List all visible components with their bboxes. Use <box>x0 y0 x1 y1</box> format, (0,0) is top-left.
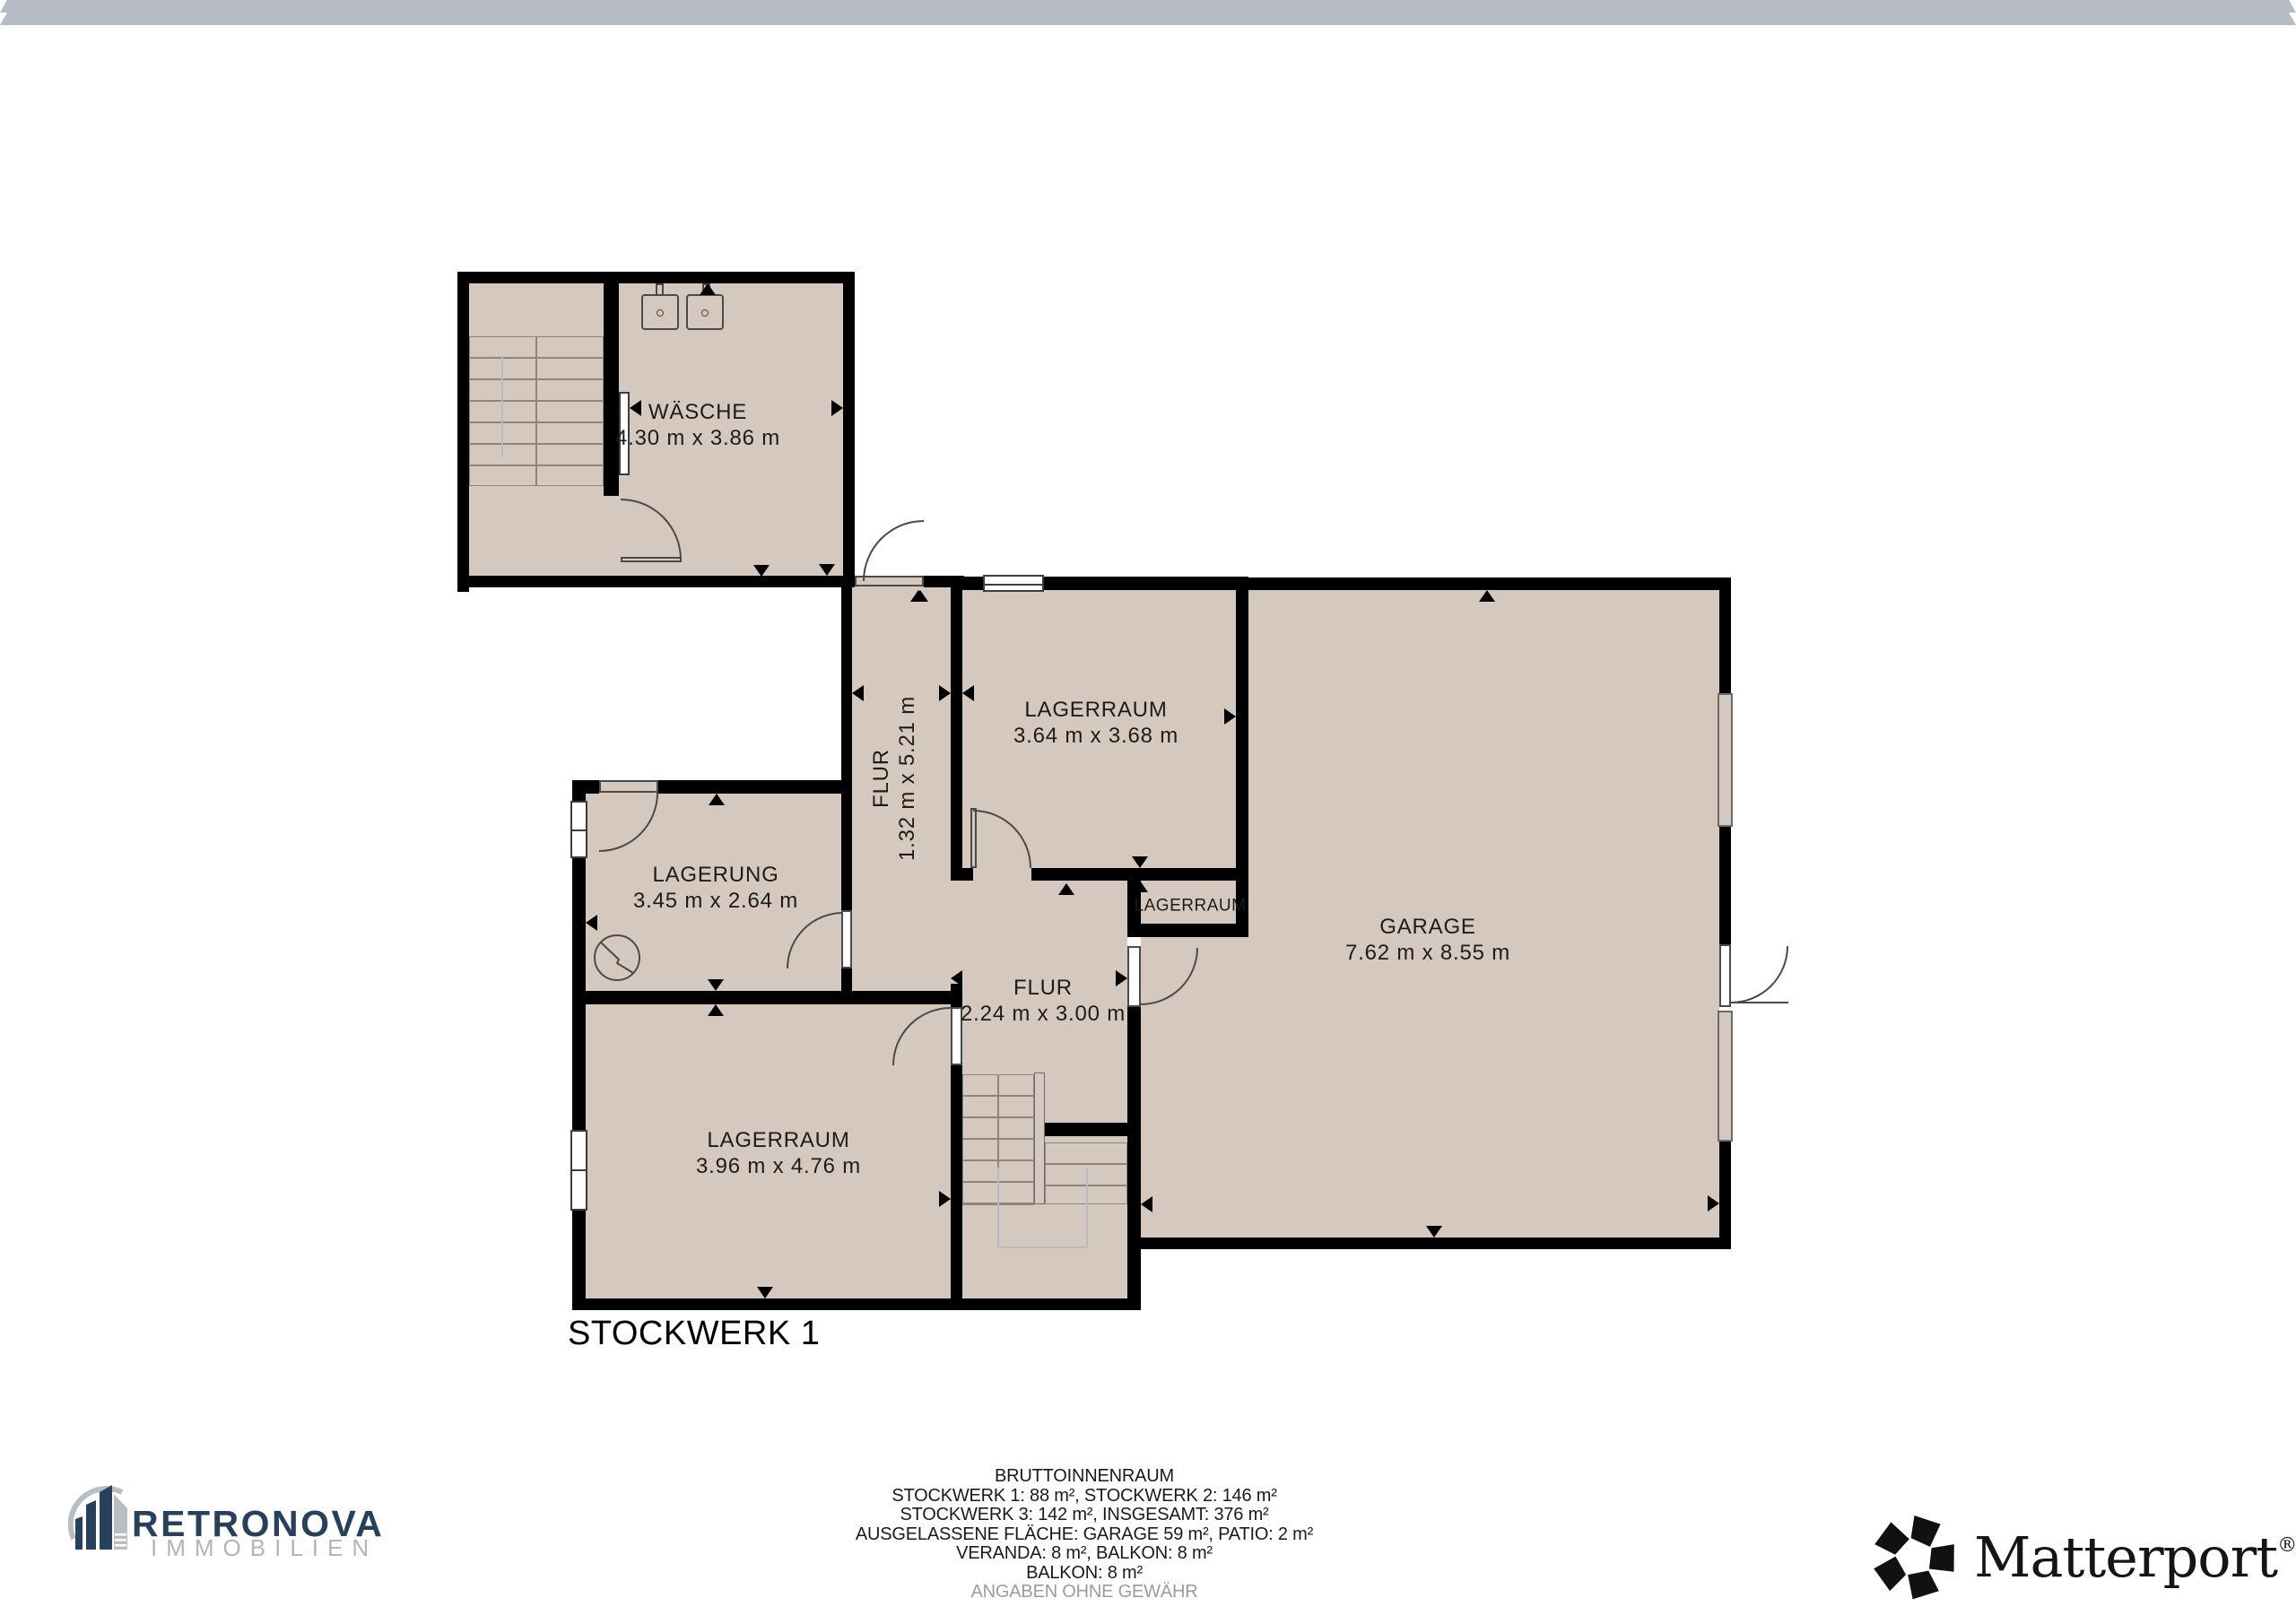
provider-logo-icon <box>1871 1514 1958 1601</box>
agency-subtitle: IMMOBILIEN <box>151 1534 378 1562</box>
room-label-lagerraum-lower: LAGERRAUM 3.96 m x 4.76 m <box>696 1127 861 1179</box>
staircase-upper-divider <box>535 336 537 486</box>
floorplan-page: WÄSCHE 4.30 m x 3.86 m LAGERRAUM 3.64 m … <box>0 0 2296 1624</box>
window <box>983 575 1044 592</box>
summary-line: STOCKWERK 1: 88 m², STOCKWERK 2: 146 m² <box>726 1487 1443 1507</box>
summary-line: AUSGELASSENE FLÄCHE: GARAGE 59 m², PATIO… <box>726 1525 1443 1545</box>
sink-drain-icon <box>701 309 709 317</box>
measure-arrow-icon <box>586 915 597 931</box>
wall <box>1248 578 1731 590</box>
room-label-garage: GARAGE 7.62 m x 8.55 m <box>1345 914 1510 966</box>
area-summary: BRUTTOINNENRAUM STOCKWERK 1: 88 m², STOC… <box>726 1467 1443 1602</box>
wall <box>1719 1142 1731 1249</box>
measure-arrow-icon <box>831 400 843 416</box>
room-dims: 2.24 m x 3.00 m <box>961 1001 1126 1027</box>
measure-arrow-icon <box>1479 590 1495 602</box>
room-name: WÄSCHE <box>615 399 780 425</box>
room-dims: 7.62 m x 8.55 m <box>1345 940 1510 966</box>
wall <box>1127 924 1248 937</box>
wall <box>572 1298 1141 1310</box>
wall <box>572 1004 586 1132</box>
wall <box>572 856 586 991</box>
agency-logo: RETRONOVA IMMOBILIEN <box>68 1480 445 1569</box>
room-name: FLUR <box>868 696 894 861</box>
staircase-upper-arrow-icon <box>0 0 2296 13</box>
door-leaf <box>1719 944 1731 1007</box>
staircase-railing <box>1034 1073 1045 1204</box>
sink-faucet-icon <box>656 283 664 296</box>
provider-name: Matterport® <box>1974 1524 2296 1590</box>
wall <box>1045 1123 1127 1136</box>
window <box>570 1130 587 1211</box>
wall <box>951 577 985 590</box>
wall <box>572 991 951 1004</box>
wall <box>457 272 469 592</box>
floor-doorway <box>604 496 619 576</box>
measure-arrow-icon <box>939 1191 951 1207</box>
measure-arrow-icon <box>939 685 951 701</box>
measure-arrow-icon <box>912 590 928 602</box>
wall <box>658 780 852 794</box>
wall <box>841 587 852 910</box>
sink-drain-icon <box>657 309 664 317</box>
wall <box>1127 1007 1141 1309</box>
door-arc <box>863 520 924 581</box>
summary-line: BALKON: 8 m² <box>726 1564 1443 1584</box>
measure-arrow-icon <box>1141 1196 1152 1212</box>
door-leaf <box>1127 946 1141 1007</box>
room-name: FLUR <box>961 975 1126 1001</box>
measure-arrow-icon <box>1132 881 1148 892</box>
boiler-icon <box>593 934 641 982</box>
room-name: LAGERRAUM <box>696 1127 861 1153</box>
wall <box>572 780 586 803</box>
wall <box>951 1065 962 1298</box>
wall <box>1042 577 1248 590</box>
room-name: LAGERUNG <box>633 862 798 888</box>
wall <box>1719 578 1731 693</box>
registered-mark: ® <box>2277 1534 2296 1557</box>
measure-arrow-icon <box>1132 856 1148 868</box>
room-name: GARAGE <box>1345 914 1510 940</box>
measure-arrow-icon <box>753 565 770 577</box>
wall <box>951 576 962 868</box>
staircase-guide-bottom <box>997 1246 1088 1248</box>
window <box>570 801 587 858</box>
room-dims: 4.30 m x 3.86 m <box>615 425 780 451</box>
staircase-lower-arrow-icon <box>0 13 2296 25</box>
staircase-upper-guide <box>501 357 503 457</box>
wall <box>457 576 855 587</box>
measure-arrow-icon <box>757 1287 773 1298</box>
room-dims: 3.64 m x 3.68 m <box>1013 723 1178 749</box>
wall <box>1141 1238 1731 1249</box>
room-label-lagerraum-top: LAGERRAUM 3.64 m x 3.68 m <box>1013 697 1178 749</box>
provider-logo: Matterport® <box>1871 1514 2296 1601</box>
room-label-lagerung: LAGERUNG 3.45 m x 2.64 m <box>633 862 798 914</box>
measure-arrow-icon <box>1708 1195 1719 1211</box>
room-label-flur-corridor: FLUR 1.32 m x 5.21 m <box>868 696 920 861</box>
measure-arrow-icon <box>1224 708 1236 725</box>
summary-disclaimer: ANGABEN OHNE GEWÄHR <box>726 1583 1443 1602</box>
measure-arrow-icon <box>852 685 864 701</box>
staircase-guide-right <box>1086 1168 1088 1248</box>
wall <box>1236 590 1248 937</box>
room-dims: 1.32 m x 5.21 m <box>894 696 920 861</box>
wall <box>951 868 973 881</box>
room-name: LAGERRAUM <box>1135 893 1247 919</box>
wall <box>1719 827 1731 944</box>
room-label-flur-room: FLUR 2.24 m x 3.00 m <box>961 975 1126 1027</box>
measure-arrow-icon <box>962 685 974 701</box>
room-dims: 3.45 m x 2.64 m <box>633 888 798 914</box>
measure-arrow-icon <box>708 1004 724 1016</box>
garage-wall-opening <box>1718 1011 1733 1142</box>
room-label-waesche: WÄSCHE 4.30 m x 3.86 m <box>615 399 780 451</box>
floor-title: STOCKWERK 1 <box>568 1315 820 1353</box>
measure-arrow-icon <box>1426 1226 1442 1238</box>
measure-arrow-icon <box>709 794 725 805</box>
room-label-lagerraum-closet: LAGERRAUM <box>1135 893 1247 919</box>
floor-doorway <box>973 868 1031 881</box>
measure-arrow-icon <box>700 283 716 295</box>
measure-arrow-icon <box>1058 883 1074 895</box>
door-arc <box>1731 946 1788 1003</box>
door-leaf-line <box>1731 1002 1788 1003</box>
measure-arrow-icon <box>708 979 724 991</box>
summary-line: STOCKWERK 3: 142 m², INSGESAMT: 376 m² <box>726 1506 1443 1525</box>
summary-line: VERANDA: 8 m², BALKON: 8 m² <box>726 1544 1443 1564</box>
garage-wall-opening <box>1718 693 1733 827</box>
provider-name-text: Matterport <box>1974 1524 2277 1590</box>
room-dims: 3.96 m x 4.76 m <box>696 1153 861 1179</box>
wall <box>572 1209 586 1298</box>
wall-stair-divider <box>604 283 619 496</box>
summary-line: BRUTTOINNENRAUM <box>726 1467 1443 1487</box>
measure-arrow-icon <box>819 564 835 576</box>
room-name: LAGERRAUM <box>1013 697 1178 723</box>
door-leaf <box>599 780 658 793</box>
wall <box>457 272 855 283</box>
staircase-guide-left <box>997 1168 999 1248</box>
wall <box>843 272 855 576</box>
